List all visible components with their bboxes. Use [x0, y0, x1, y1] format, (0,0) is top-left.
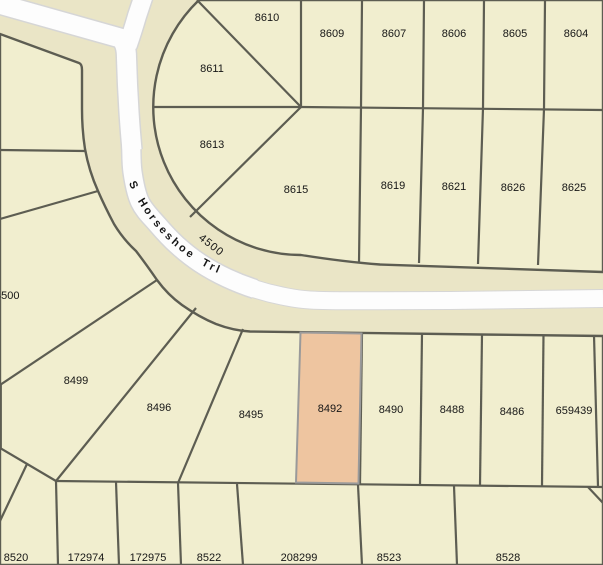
- svg-text:8520: 8520: [4, 552, 28, 564]
- svg-text:172974: 172974: [68, 552, 105, 564]
- svg-text:8606: 8606: [442, 28, 466, 40]
- svg-text:8610: 8610: [255, 12, 279, 24]
- svg-text:8523: 8523: [377, 552, 401, 564]
- svg-text:8499: 8499: [64, 375, 88, 387]
- svg-text:8605: 8605: [503, 28, 527, 40]
- svg-text:8495: 8495: [239, 409, 263, 421]
- svg-text:659439: 659439: [556, 405, 593, 417]
- svg-text:8613: 8613: [200, 139, 224, 151]
- svg-text:8626: 8626: [501, 182, 525, 194]
- svg-text:8492: 8492: [318, 403, 342, 415]
- svg-text:8490: 8490: [379, 404, 403, 416]
- svg-text:8528: 8528: [496, 552, 520, 564]
- svg-text:8611: 8611: [200, 63, 224, 75]
- svg-text:4500: 4500: [0, 290, 19, 302]
- svg-text:8522: 8522: [197, 552, 221, 564]
- svg-text:8619: 8619: [381, 180, 405, 192]
- svg-text:8615: 8615: [284, 184, 308, 196]
- svg-text:8607: 8607: [382, 28, 406, 40]
- svg-text:8609: 8609: [320, 28, 344, 40]
- svg-text:8488: 8488: [440, 404, 464, 416]
- svg-text:8496: 8496: [147, 402, 171, 414]
- svg-text:8625: 8625: [562, 182, 586, 194]
- svg-text:8486: 8486: [500, 406, 524, 418]
- svg-text:8621: 8621: [442, 181, 466, 193]
- svg-text:172975: 172975: [130, 552, 167, 564]
- svg-text:208299: 208299: [281, 552, 318, 564]
- svg-text:8604: 8604: [564, 28, 588, 40]
